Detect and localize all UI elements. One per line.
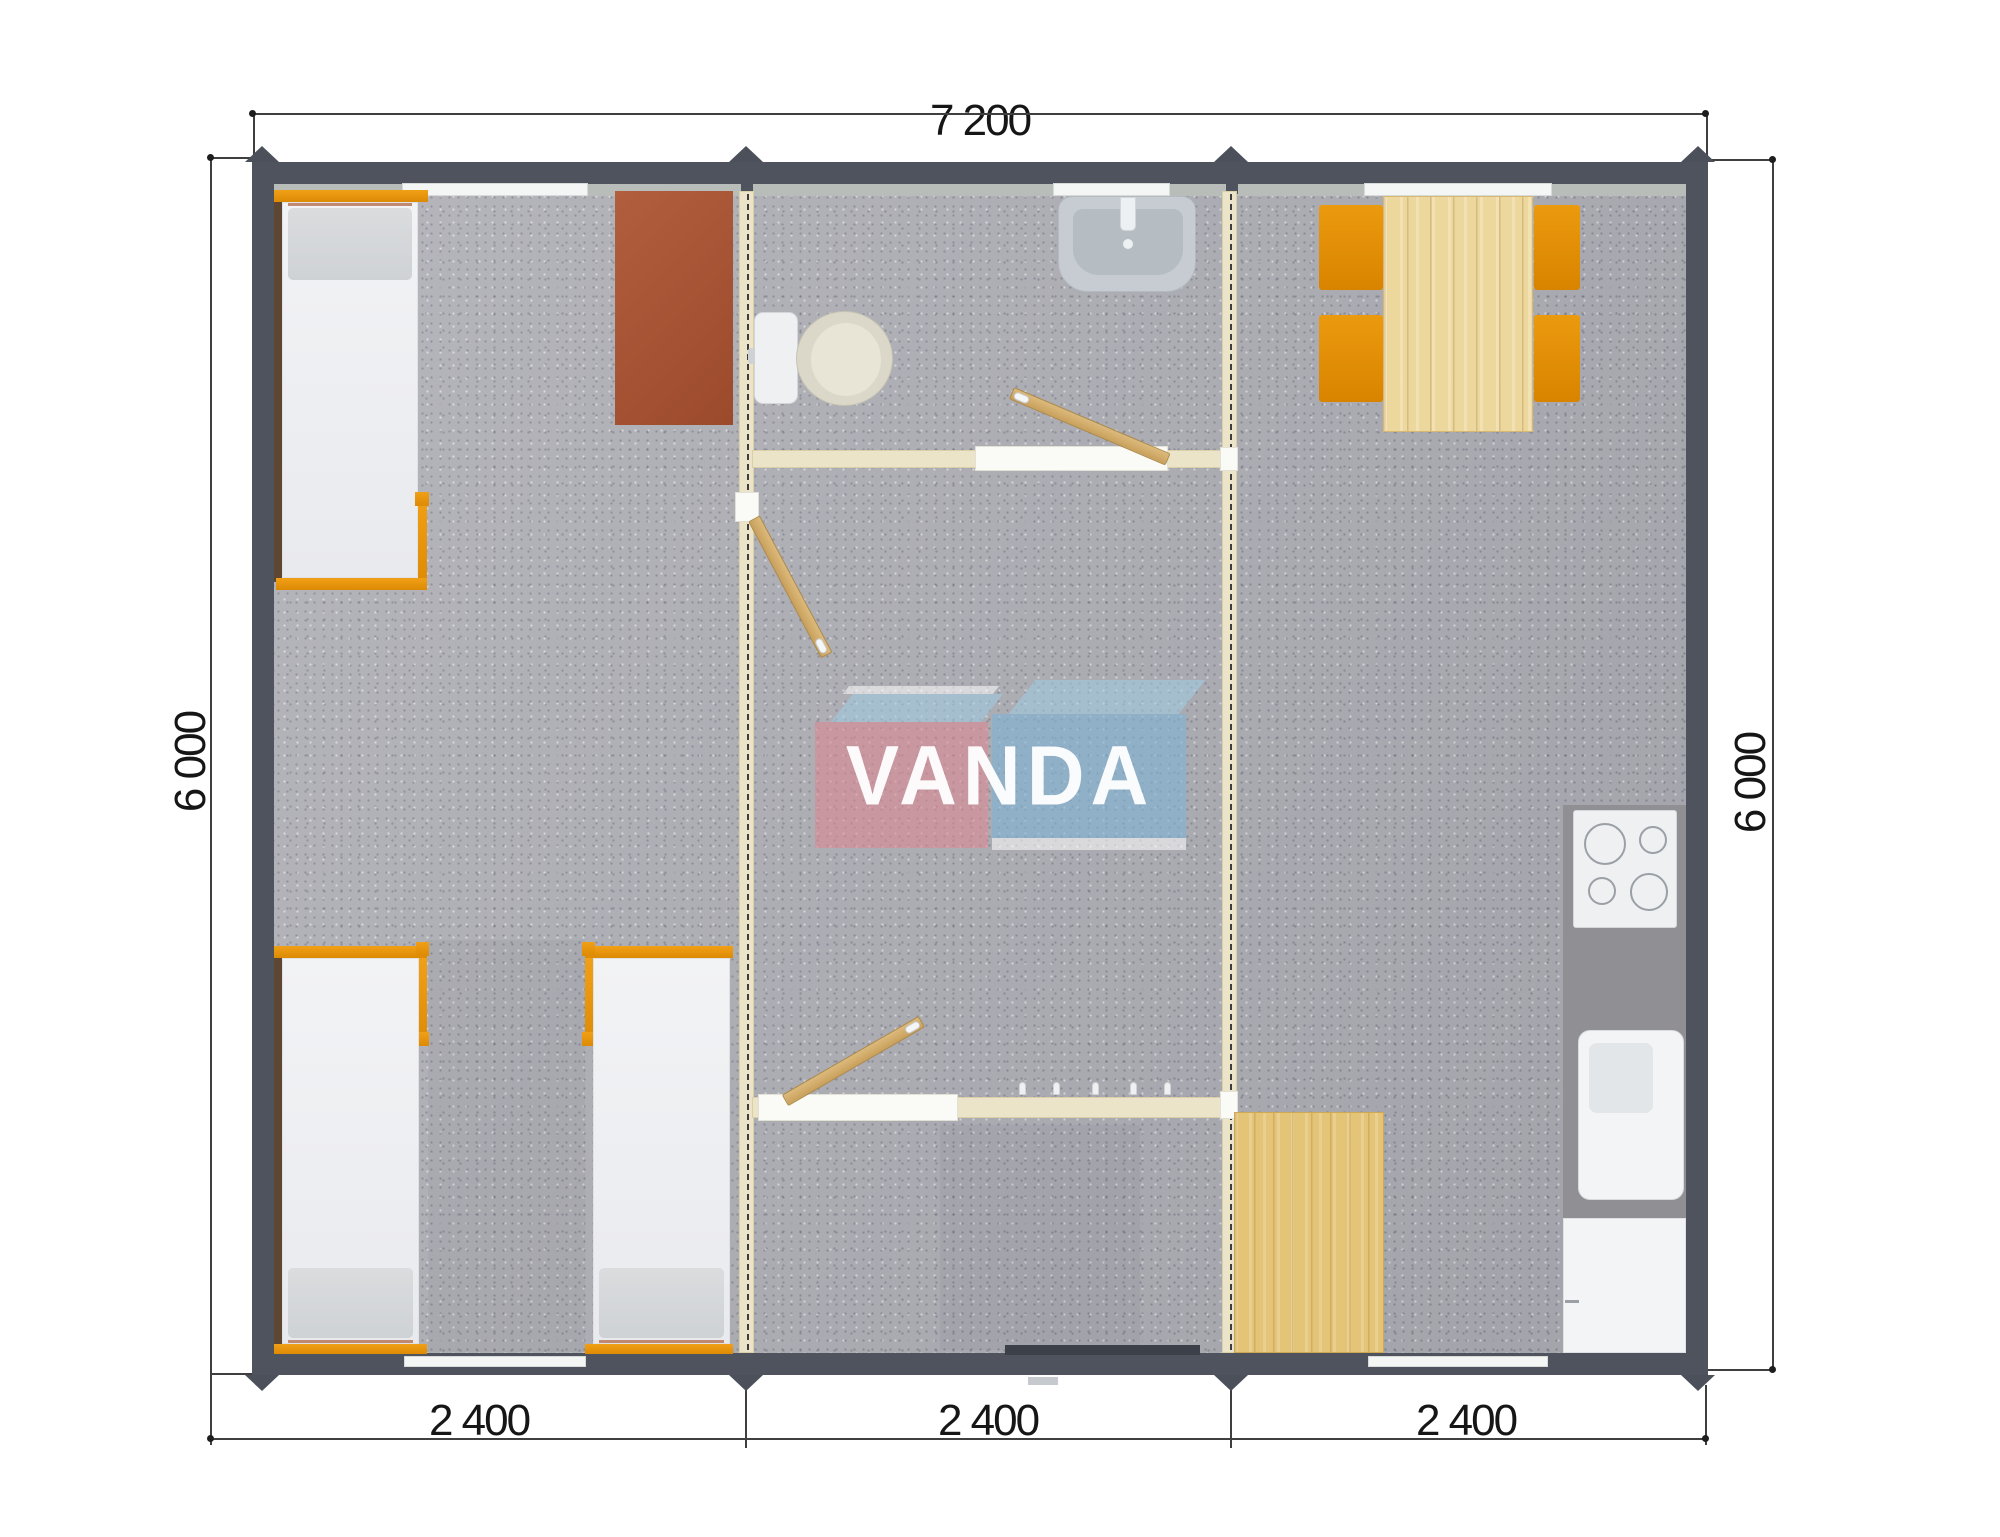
- extension-line: [1708, 1369, 1774, 1371]
- bed-pillow: [288, 208, 412, 280]
- floor-shade: [940, 1125, 1140, 1350]
- floor-shade: [428, 940, 585, 1352]
- bed-frame-tab: [415, 492, 429, 506]
- bed-frame-head: [585, 946, 733, 958]
- coat-hook: [1164, 1082, 1171, 1095]
- module-marker-icon: [245, 1375, 279, 1391]
- coat-hook: [1092, 1082, 1099, 1095]
- dining-chair: [1534, 205, 1580, 290]
- dimension-end-dot: [207, 154, 214, 161]
- bed-frame-rail: [418, 497, 427, 587]
- burner-icon: [1630, 873, 1668, 911]
- burner-icon: [1639, 826, 1667, 854]
- cabinet-handle: [1565, 1300, 1579, 1303]
- bed-headboard-line: [599, 1340, 724, 1343]
- bed-frame-tab: [416, 942, 429, 956]
- faucet-icon: [1120, 197, 1136, 231]
- dimension-label-left: 6 000: [166, 682, 210, 842]
- toilet-flush: [748, 348, 755, 364]
- partition-centerline: [1230, 194, 1232, 1350]
- burner-icon: [1588, 877, 1616, 905]
- window-bottom-right-module: [1368, 1356, 1548, 1367]
- bed-frame-side: [274, 958, 282, 1348]
- door-handle: [1013, 391, 1031, 405]
- window-top-left-module: [402, 183, 588, 196]
- window-bottom-left-module: [404, 1356, 586, 1367]
- floor-plan: 7 200 6 000 6 000 2 400 2 400 2 400: [0, 0, 2000, 1537]
- dimension-end-dot: [1702, 110, 1709, 117]
- sink-drain: [1123, 239, 1133, 249]
- extension-line: [1708, 159, 1774, 161]
- bed-headboard-line: [288, 203, 412, 206]
- dimension-line-right: [1772, 159, 1774, 1370]
- burner-icon: [1584, 823, 1626, 865]
- bathroom-sink: [1058, 196, 1196, 292]
- partition-centerline: [747, 194, 749, 1350]
- wall-right: [1686, 162, 1708, 1375]
- dimension-end-dot: [1769, 1366, 1776, 1373]
- window-top-middle-module: [1053, 183, 1170, 196]
- module-marker-icon: [1681, 1375, 1715, 1391]
- module-marker-icon: [1214, 1375, 1248, 1391]
- vanda-logo: VANDA: [800, 670, 1200, 860]
- bed-frame-head: [274, 946, 427, 958]
- module-tick: [745, 1390, 747, 1448]
- dimension-end-dot: [249, 110, 256, 117]
- dining-table: [1383, 196, 1533, 432]
- base-cabinet: [1563, 1218, 1686, 1353]
- dimension-line-bottom: [211, 1438, 1708, 1440]
- dimension-end-dot: [207, 1435, 214, 1442]
- bed-pillow: [599, 1268, 724, 1338]
- logo-box-top-face: [1009, 680, 1206, 714]
- module-marker-icon: [729, 1375, 763, 1391]
- bed-frame-head: [274, 190, 428, 202]
- bed-frame-foot: [274, 1344, 427, 1354]
- toilet-seat: [811, 323, 881, 396]
- window-top-right-module: [1364, 183, 1552, 196]
- dimension-label-top: 7 200: [830, 96, 1130, 146]
- kitchen-sink: [1578, 1030, 1684, 1200]
- cooktop: [1573, 810, 1677, 928]
- wall-top: [252, 162, 1708, 184]
- logo-text: VANDA: [810, 728, 1190, 825]
- dining-chair: [1534, 315, 1580, 402]
- module-marker-icon: [729, 146, 763, 162]
- dimension-line-left: [210, 157, 212, 1445]
- dimension-end-dot: [1769, 156, 1776, 163]
- dimension-label-right: 6 000: [1726, 703, 1770, 863]
- entry-door: [1005, 1345, 1200, 1355]
- logo-highlight: [843, 686, 999, 694]
- module-marker-icon: [1214, 146, 1248, 162]
- toilet-bowl: [796, 311, 893, 406]
- desk: [615, 191, 733, 425]
- bed-frame-side: [274, 202, 282, 582]
- dining-chair: [1319, 205, 1383, 290]
- bed-frame-foot: [276, 578, 427, 590]
- wall-left: [252, 162, 274, 1375]
- bed-headboard-line: [288, 1340, 413, 1343]
- logo-box-top-face: [831, 694, 1003, 722]
- sink-basin: [1589, 1043, 1653, 1113]
- dimension-line-top: [253, 113, 1708, 115]
- dining-chair: [1319, 315, 1383, 402]
- bed-pillow: [288, 1268, 413, 1338]
- partition-module-1-2: [739, 191, 754, 1353]
- toilet-tank: [754, 312, 798, 404]
- bed-frame-tab: [582, 942, 595, 956]
- wood-floor-mat: [1234, 1112, 1384, 1353]
- dimension-end-dot: [1702, 1435, 1709, 1442]
- logo-highlight: [992, 838, 1186, 850]
- coat-hook: [1130, 1082, 1137, 1095]
- coat-hook: [1053, 1082, 1060, 1095]
- module-tick: [1230, 1390, 1232, 1448]
- door-jamb: [1220, 447, 1238, 471]
- entry-step: [1028, 1377, 1058, 1385]
- coat-hook: [1019, 1082, 1026, 1095]
- module-marker-icon: [245, 146, 279, 162]
- bed-frame-foot: [585, 1344, 733, 1354]
- module-marker-icon: [1681, 146, 1715, 162]
